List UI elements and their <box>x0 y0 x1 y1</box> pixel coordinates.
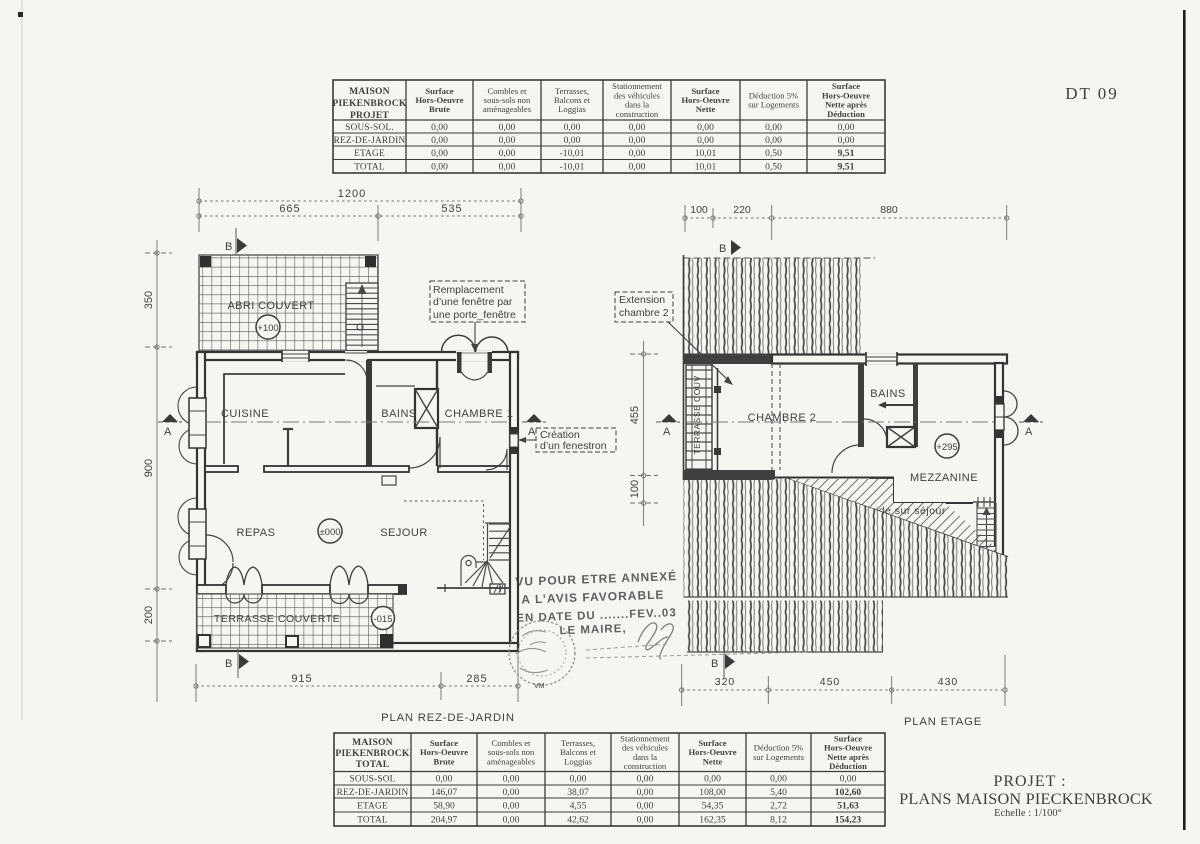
svg-text:535: 535 <box>441 203 462 215</box>
svg-text:sur Logements: sur Logements <box>753 752 804 762</box>
svg-text:0,50: 0,50 <box>765 162 782 173</box>
svg-text:B: B <box>711 658 718 670</box>
svg-text:Déduction: Déduction <box>827 109 865 119</box>
svg-text:0,00: 0,00 <box>697 122 714 133</box>
svg-text:200: 200 <box>143 606 155 624</box>
svg-text:4,55: 4,55 <box>570 800 587 811</box>
svg-text:MEZZANINE: MEZZANINE <box>910 472 978 484</box>
svg-text:SOUS-SOL.: SOUS-SOL. <box>345 123 394 133</box>
svg-text:PROJET: PROJET <box>350 110 389 121</box>
svg-text:Loggias: Loggias <box>558 104 586 114</box>
svg-text:DT 09: DT 09 <box>1065 84 1119 103</box>
svg-text:51,63: 51,63 <box>837 800 859 811</box>
svg-text:aménageables: aménageables <box>487 756 536 766</box>
svg-text:0,00: 0,00 <box>637 787 654 798</box>
svg-text:Loggias: Loggias <box>564 756 592 766</box>
svg-text:REZ-DE-JARDIN: REZ-DE-JARDIN <box>334 136 406 146</box>
svg-text:38,07: 38,07 <box>567 787 589 798</box>
svg-text:880: 880 <box>880 204 898 216</box>
svg-text:58,90: 58,90 <box>433 800 455 811</box>
svg-text:TOTAL: TOTAL <box>356 759 390 770</box>
svg-text:B: B <box>225 241 232 253</box>
svg-text:TERRASSE COUVERTE: TERRASSE COUVERTE <box>214 613 340 625</box>
svg-text:CUISINE: CUISINE <box>221 408 269 420</box>
svg-text:-10,01: -10,01 <box>560 162 585 173</box>
svg-text:665: 665 <box>279 203 300 215</box>
svg-text:TOTAL: TOTAL <box>357 815 388 825</box>
svg-text:0,00: 0,00 <box>503 814 520 825</box>
svg-text:0,00: 0,00 <box>503 774 520 785</box>
svg-text:TOTAL: TOTAL <box>354 163 385 173</box>
svg-text:0,00: 0,00 <box>629 122 646 133</box>
svg-text:REZ-DE-JARDIN: REZ-DE-JARDIN <box>337 788 409 798</box>
svg-text:54,35: 54,35 <box>702 800 724 811</box>
svg-text:0,00: 0,00 <box>503 787 520 798</box>
svg-text:0,00: 0,00 <box>697 135 714 146</box>
svg-text:900: 900 <box>143 459 155 477</box>
svg-text:±000: ±000 <box>319 527 340 538</box>
svg-text:430: 430 <box>938 676 959 688</box>
svg-text:A: A <box>663 426 671 438</box>
svg-text:0,00: 0,00 <box>629 148 646 159</box>
svg-text:PROJET :: PROJET : <box>993 773 1066 790</box>
svg-text:ETAGE: ETAGE <box>357 801 388 811</box>
svg-text:102,60: 102,60 <box>835 787 862 798</box>
svg-text:0,00: 0,00 <box>765 135 782 146</box>
svg-text:0,00: 0,00 <box>431 135 448 146</box>
svg-text:-10,01: -10,01 <box>560 148 585 159</box>
svg-text:455: 455 <box>629 406 641 424</box>
svg-text:0,50: 0,50 <box>765 148 782 159</box>
svg-text:320: 320 <box>715 676 736 688</box>
svg-text:204,97: 204,97 <box>431 814 458 825</box>
svg-text:0,00: 0,00 <box>629 135 646 146</box>
svg-text:TERRASSE COUV: TERRASSE COUV <box>692 375 702 454</box>
svg-text:8,12: 8,12 <box>770 814 787 825</box>
svg-text:VM: VM <box>534 683 545 690</box>
svg-text:A: A <box>528 426 536 438</box>
svg-text:PLANS MAISON PIECKENBROCK: PLANS MAISON PIECKENBROCK <box>899 789 1153 808</box>
svg-text:CHAMBRE 2: CHAMBRE 2 <box>748 412 817 424</box>
svg-text:146,07: 146,07 <box>431 787 458 798</box>
svg-text:SEJOUR: SEJOUR <box>380 527 428 539</box>
svg-text:9,51: 9,51 <box>838 148 855 159</box>
svg-text:construction: construction <box>616 109 659 119</box>
svg-text:0,00: 0,00 <box>570 774 587 785</box>
svg-text:CHAMBRE 1: CHAMBRE 1 <box>445 408 514 420</box>
svg-text:chambre 2: chambre 2 <box>619 307 669 319</box>
svg-text:100: 100 <box>690 204 708 216</box>
svg-text:5,40: 5,40 <box>770 787 787 798</box>
svg-text:Brute: Brute <box>433 756 454 766</box>
svg-text:A: A <box>164 426 172 438</box>
svg-text:0,00: 0,00 <box>564 122 581 133</box>
svg-text:450: 450 <box>820 676 841 688</box>
svg-text:10,01: 10,01 <box>695 148 717 159</box>
svg-text:2,72: 2,72 <box>770 800 787 811</box>
svg-text:0,00: 0,00 <box>637 814 654 825</box>
svg-text:-015: -015 <box>373 614 392 625</box>
svg-text:100: 100 <box>629 480 641 498</box>
svg-text:0,00: 0,00 <box>431 148 448 159</box>
svg-text:PIEKENBROCK: PIEKENBROCK <box>335 748 410 759</box>
svg-text:MAISON: MAISON <box>349 86 390 97</box>
svg-text:0,00: 0,00 <box>838 135 855 146</box>
svg-text:1200: 1200 <box>338 188 366 200</box>
svg-text:0,00: 0,00 <box>838 122 855 133</box>
svg-text:10,01: 10,01 <box>695 162 717 173</box>
svg-text:REPAS: REPAS <box>237 527 276 539</box>
svg-text:Nette: Nette <box>696 104 716 114</box>
svg-text:0,00: 0,00 <box>499 162 516 173</box>
svg-text:0,00: 0,00 <box>499 148 516 159</box>
svg-text:BAINS: BAINS <box>381 408 417 420</box>
svg-text:0,00: 0,00 <box>564 135 581 146</box>
svg-text:SOUS-SOL: SOUS-SOL <box>349 775 395 785</box>
svg-text:PLAN REZ-DE-JARDIN: PLAN REZ-DE-JARDIN <box>381 712 515 724</box>
svg-text:108,00: 108,00 <box>699 787 726 798</box>
svg-text:0,00: 0,00 <box>637 774 654 785</box>
svg-text:Déduction: Déduction <box>829 761 867 771</box>
svg-text:154,23: 154,23 <box>835 814 862 825</box>
svg-text:aménageables: aménageables <box>483 104 532 114</box>
svg-text:220: 220 <box>733 204 751 216</box>
svg-text:Nette: Nette <box>703 756 723 766</box>
svg-text:Echelle : 1/100°: Echelle : 1/100° <box>994 808 1062 819</box>
svg-text:ABRI COUVERT: ABRI COUVERT <box>227 300 314 312</box>
svg-text:0,00: 0,00 <box>436 774 453 785</box>
svg-text:Remplacement: Remplacement <box>433 284 504 296</box>
svg-text:0,00: 0,00 <box>704 774 721 785</box>
svg-text:0,00: 0,00 <box>840 774 857 785</box>
svg-text:162,35: 162,35 <box>699 814 726 825</box>
svg-text:0,00: 0,00 <box>431 122 448 133</box>
svg-text:d’un fenestron: d’un fenestron <box>540 440 607 452</box>
svg-text:42,62: 42,62 <box>567 814 589 825</box>
svg-text:0,00: 0,00 <box>770 774 787 785</box>
svg-text:0,00: 0,00 <box>431 162 448 173</box>
svg-text:sur Logements: sur Logements <box>748 100 799 110</box>
svg-text:A: A <box>1025 426 1033 438</box>
svg-text:Brute: Brute <box>429 104 450 114</box>
svg-text:0,00: 0,00 <box>765 122 782 133</box>
svg-text:0,00: 0,00 <box>503 800 520 811</box>
svg-text:915: 915 <box>291 673 312 685</box>
svg-text:ETAGE: ETAGE <box>354 149 385 159</box>
svg-text:d’une fenêtre par: d’une fenêtre par <box>433 296 513 308</box>
svg-text:MAISON: MAISON <box>352 737 393 748</box>
svg-text:0,00: 0,00 <box>629 162 646 173</box>
svg-text:construction: construction <box>624 761 667 771</box>
svg-text:9,51: 9,51 <box>838 162 855 173</box>
svg-text:350: 350 <box>143 291 155 309</box>
svg-text:PLAN ETAGE: PLAN ETAGE <box>904 716 982 728</box>
svg-text:0,00: 0,00 <box>499 135 516 146</box>
svg-text:une porte_fenêtre: une porte_fenêtre <box>433 309 516 321</box>
svg-text:285: 285 <box>466 673 487 685</box>
svg-text:0,00: 0,00 <box>637 800 654 811</box>
svg-text:BAINS: BAINS <box>870 388 906 400</box>
svg-text:0,00: 0,00 <box>499 122 516 133</box>
svg-text:+295: +295 <box>936 442 957 453</box>
svg-text:B: B <box>225 658 232 670</box>
svg-text:+100: +100 <box>257 323 278 334</box>
svg-text:PIEKENBROCK: PIEKENBROCK <box>332 98 407 109</box>
svg-text:B: B <box>719 243 726 255</box>
svg-text:Extension: Extension <box>619 294 665 306</box>
